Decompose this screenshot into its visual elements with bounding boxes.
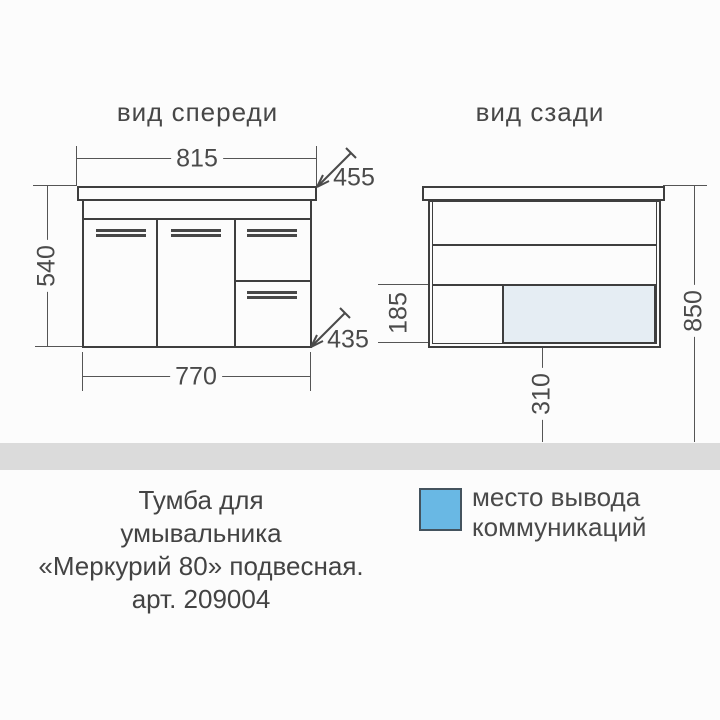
caption-line-4: арт. 209004 bbox=[14, 583, 388, 616]
front-drawer-divider bbox=[234, 280, 312, 282]
back-countertop bbox=[422, 186, 665, 201]
back-shelf-line-1 bbox=[433, 244, 657, 246]
floor-band bbox=[0, 443, 720, 470]
front-view-title: вид спереди bbox=[60, 97, 335, 128]
drawer-handle-top bbox=[247, 229, 297, 237]
dim-185-label: 185 bbox=[387, 292, 412, 334]
front-body-left-edge bbox=[82, 200, 84, 348]
caption-line-2: умывальника bbox=[14, 517, 388, 550]
communication-outlet-area bbox=[502, 284, 656, 344]
communication-outlet-swatch-icon bbox=[419, 488, 462, 531]
drawer-handle-bottom bbox=[247, 291, 297, 299]
dim-540-label: 540 bbox=[35, 240, 60, 292]
dim-770-extension-left bbox=[82, 352, 83, 391]
caption-line-3: «Меркурий 80» подвесная. bbox=[14, 550, 388, 583]
front-countertop bbox=[77, 186, 317, 201]
back-view-title: вид сзади bbox=[420, 97, 660, 128]
dim-540-extension-top bbox=[33, 185, 77, 186]
legend-label: место вывода коммуникаций bbox=[472, 482, 646, 542]
dim-435-label: 435 bbox=[327, 328, 369, 353]
dim-310-label: 310 bbox=[530, 368, 555, 420]
front-door-divider-1 bbox=[156, 218, 158, 348]
dim-770-label: 770 bbox=[170, 365, 222, 390]
caption-line-1: Тумба для bbox=[14, 484, 388, 517]
legend-label-line-2: коммуникаций bbox=[472, 512, 646, 542]
dim-850-label: 850 bbox=[682, 285, 707, 337]
front-doors-top-edge bbox=[82, 218, 312, 220]
door-handle-left bbox=[96, 229, 146, 237]
dim-540-extension-bottom bbox=[35, 346, 82, 347]
legend-label-line-1: место вывода bbox=[472, 482, 646, 512]
dim-770-extension-right bbox=[310, 352, 311, 391]
front-body-bottom-edge bbox=[82, 346, 312, 348]
dim-455-label: 455 bbox=[333, 166, 375, 191]
dim-815-extension-left bbox=[76, 146, 77, 186]
dim-185-extension-top bbox=[378, 284, 428, 285]
door-handle-middle bbox=[171, 229, 221, 237]
dim-185-extension-bottom bbox=[378, 342, 428, 343]
dim-815-label: 815 bbox=[171, 147, 223, 172]
product-caption: Тумба для умывальника «Меркурий 80» подв… bbox=[14, 484, 388, 616]
spec-sheet: вид спереди 815 455 540 435 770 вид с bbox=[0, 0, 720, 720]
front-door-divider-2 bbox=[234, 218, 236, 348]
dim-850-extension-top bbox=[663, 185, 707, 186]
